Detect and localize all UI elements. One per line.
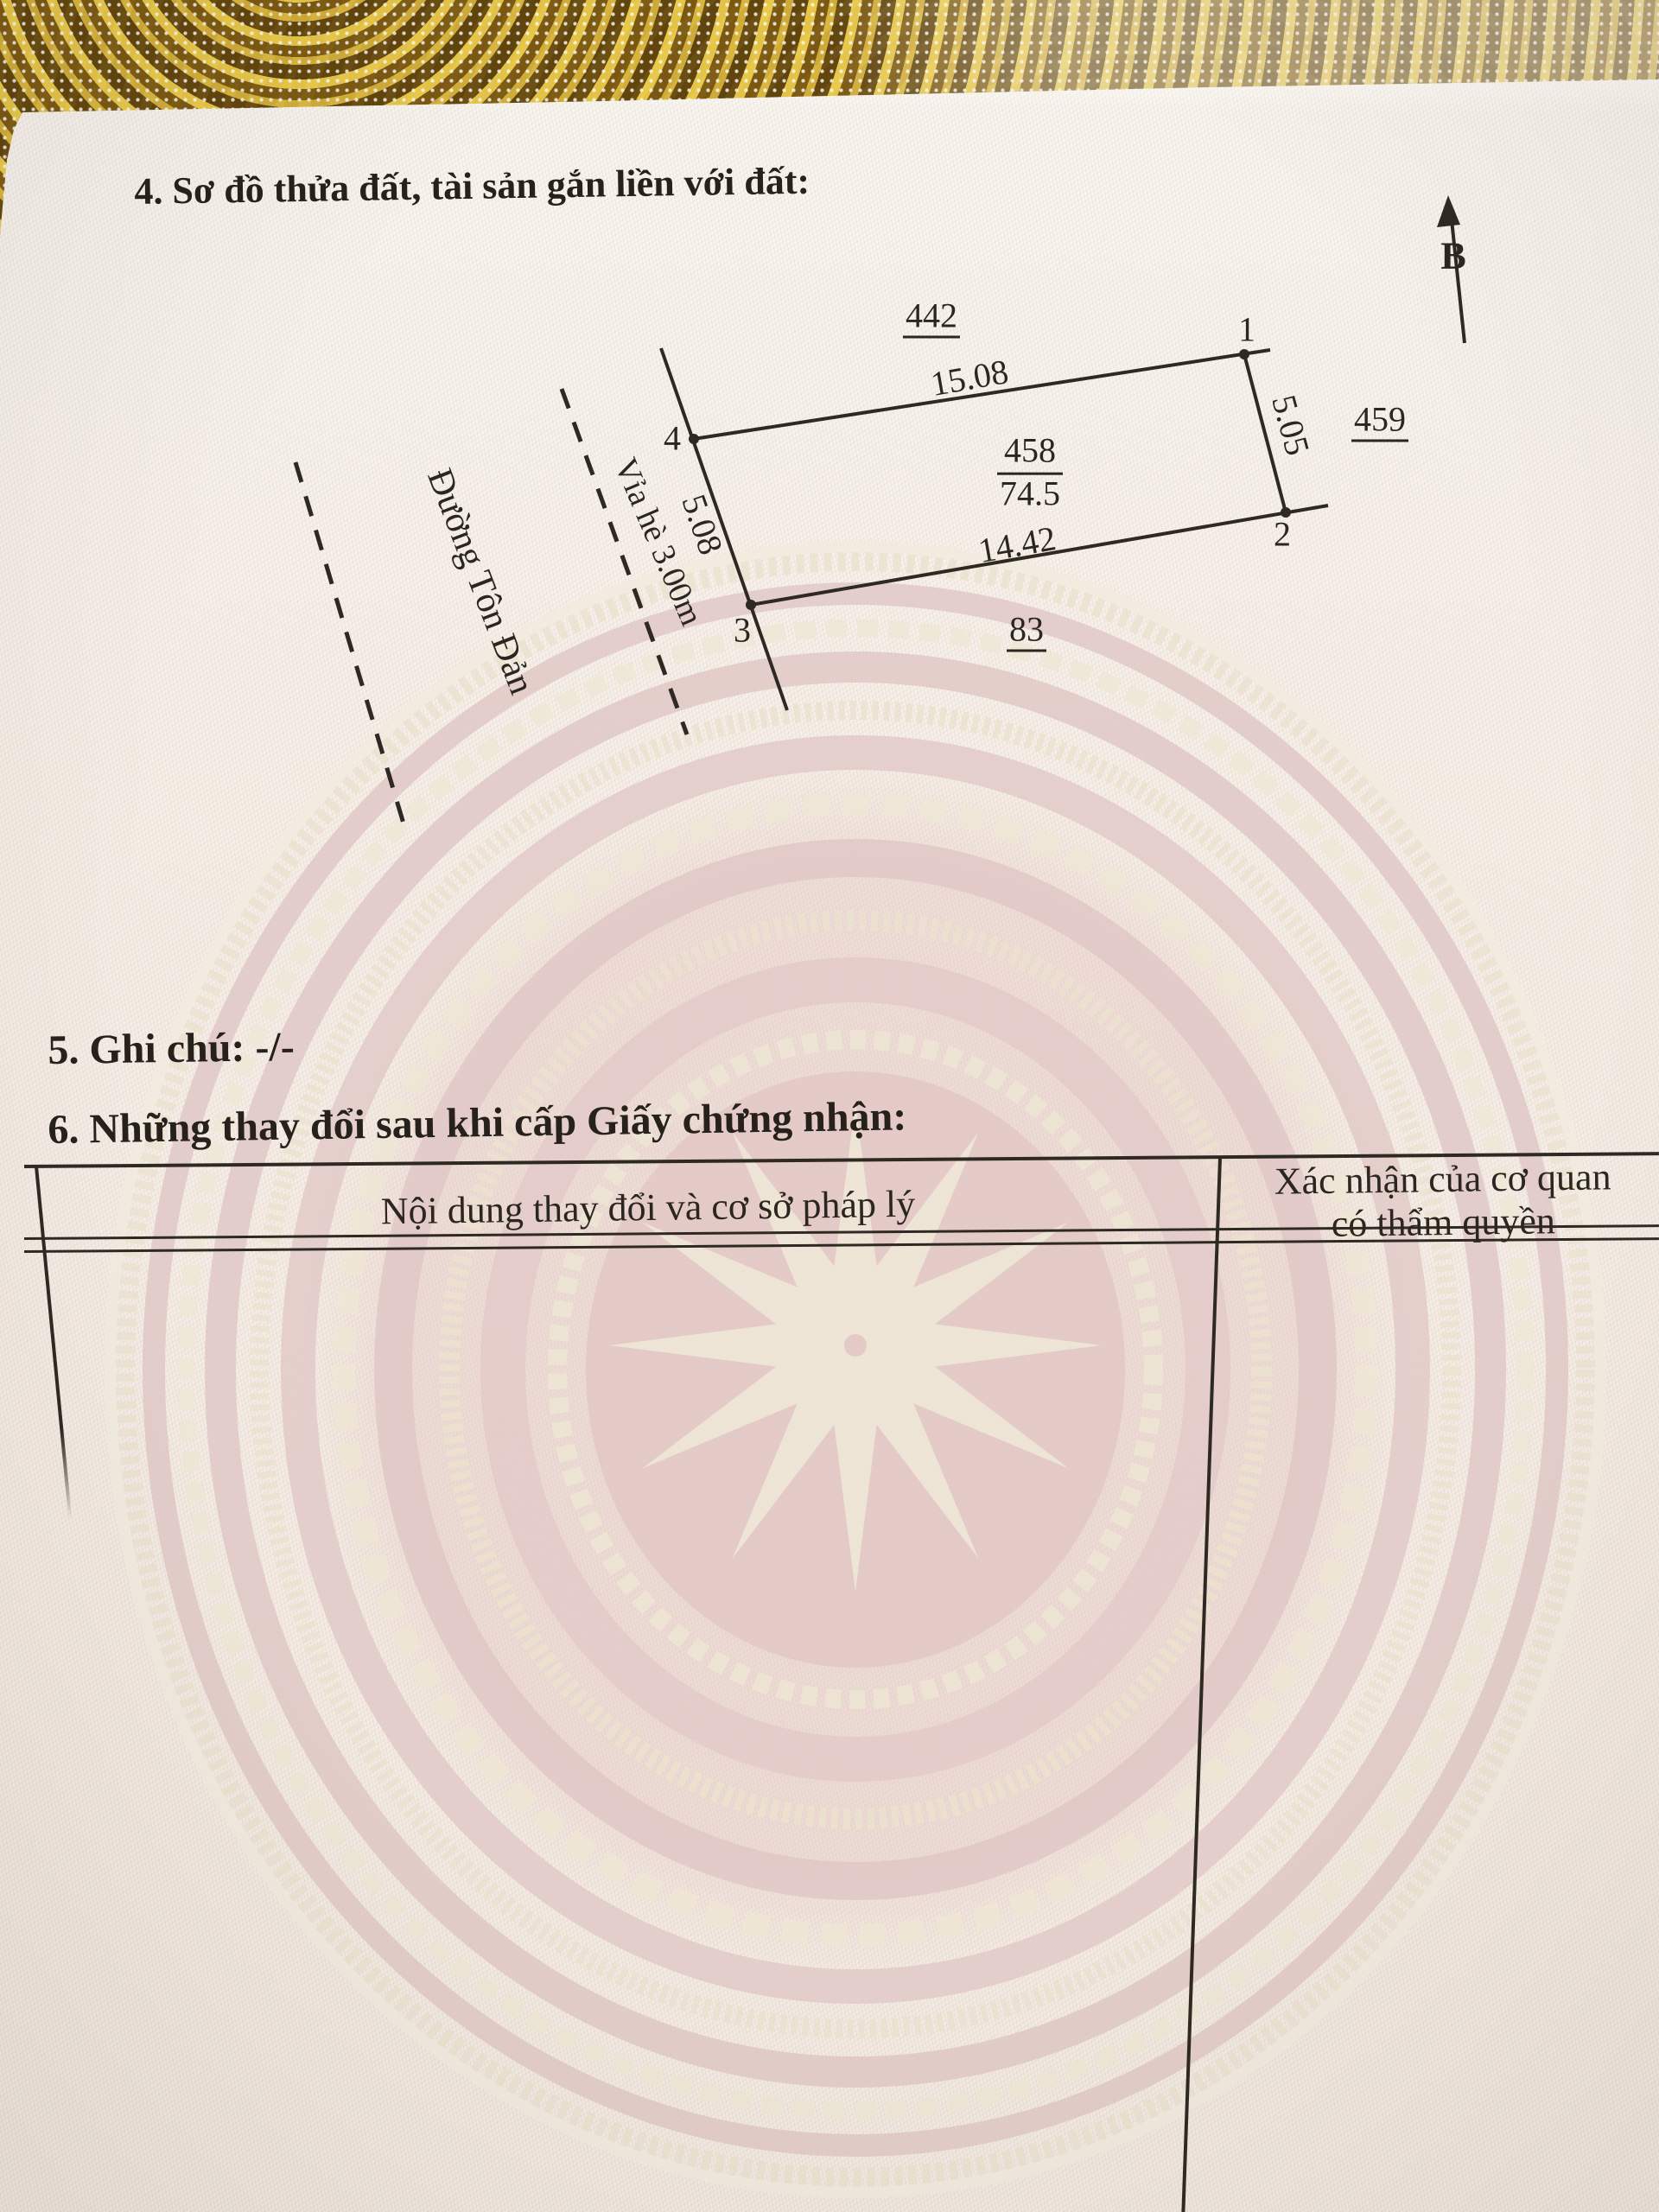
vertex-label-2: 2 bbox=[1274, 514, 1291, 555]
section5-heading: 5. Ghi chú: -/- bbox=[48, 1023, 295, 1074]
plot-83-text: 83 bbox=[1007, 610, 1046, 652]
north-label: B bbox=[1440, 234, 1465, 278]
photo-of-land-certificate-page: 4. Sơ đồ thửa đất, tài sản gắn liền với … bbox=[0, 0, 1659, 2212]
neighbor-plot-442: 442 bbox=[903, 296, 960, 336]
vertex-dot-3 bbox=[746, 600, 756, 610]
neighbor-plot-83: 83 bbox=[1007, 609, 1046, 650]
table-col2-header-line2: có thẩm quyền bbox=[1227, 1198, 1659, 1248]
table-col2-header: Xác nhận của cơ quan có thẩm quyền bbox=[1226, 1155, 1659, 1248]
plot-442-text: 442 bbox=[903, 296, 960, 339]
vertex-label-4: 4 bbox=[664, 418, 681, 459]
neighbor-plot-459: 459 bbox=[1351, 399, 1408, 440]
plot-459-text: 459 bbox=[1351, 400, 1408, 442]
parcel-area: 74.5 bbox=[997, 475, 1063, 514]
vertex-dot-4 bbox=[689, 434, 699, 444]
vertex-dot-1 bbox=[1239, 349, 1249, 359]
parcel-number-and-area: 458 74.5 bbox=[997, 432, 1063, 514]
vertex-label-3: 3 bbox=[734, 610, 751, 651]
parcel-number: 458 bbox=[997, 432, 1063, 475]
street-dashed-line bbox=[296, 462, 404, 823]
vertex-label-1: 1 bbox=[1238, 309, 1255, 350]
table-col2-header-line1: Xác nhận của cơ quan bbox=[1226, 1155, 1659, 1205]
certificate-page: 4. Sơ đồ thửa đất, tài sản gắn liền với … bbox=[0, 0, 1659, 2212]
north-arrow-head bbox=[1437, 195, 1460, 227]
